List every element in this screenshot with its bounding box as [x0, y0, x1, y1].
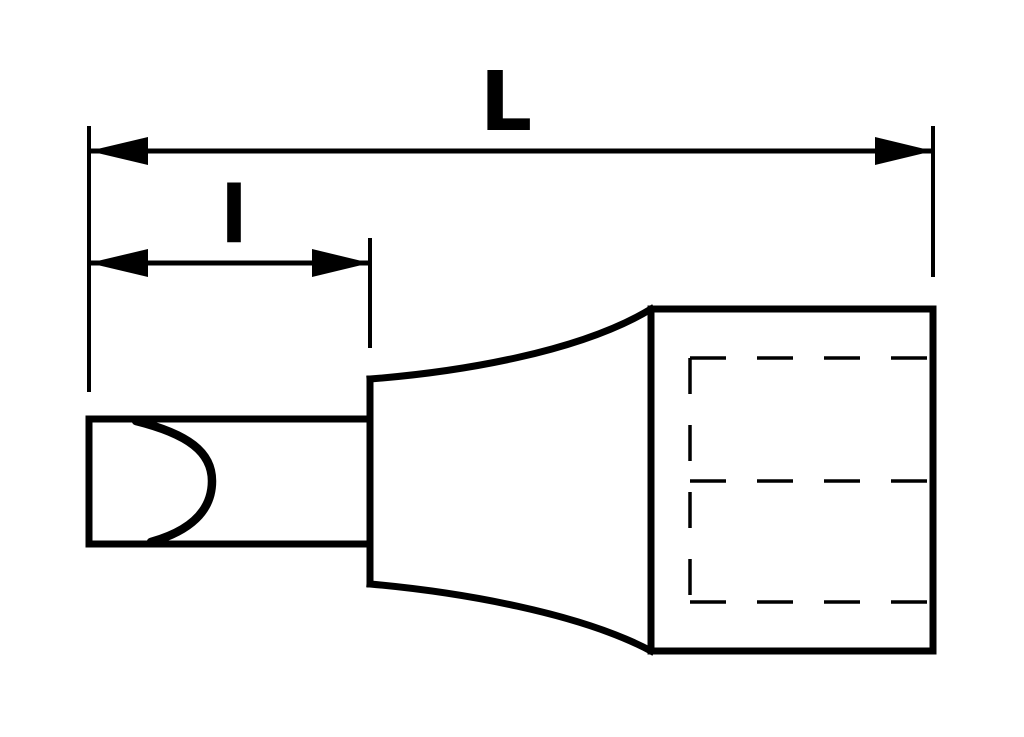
arrowhead-left-icon — [89, 137, 148, 165]
label-overall-length: L — [480, 55, 532, 150]
socket-bit-technical-drawing: L l — [0, 0, 1024, 737]
arrowhead-right-icon — [312, 249, 370, 277]
dimension-tip-length: l — [89, 171, 370, 348]
blade-flat-curve — [136, 421, 212, 542]
technical-drawing-page: L l — [0, 0, 1024, 737]
taper-top-curve — [370, 309, 651, 379]
part-outline — [89, 309, 933, 651]
label-tip-length: l — [221, 171, 248, 261]
arrowhead-right-icon — [875, 137, 933, 165]
blade-and-shank-outline — [89, 419, 370, 544]
arrowhead-left-icon — [89, 249, 148, 277]
dimension-overall-length: L — [89, 55, 933, 392]
taper-bottom-curve — [370, 584, 651, 651]
square-drive-hidden-lines — [690, 358, 933, 602]
